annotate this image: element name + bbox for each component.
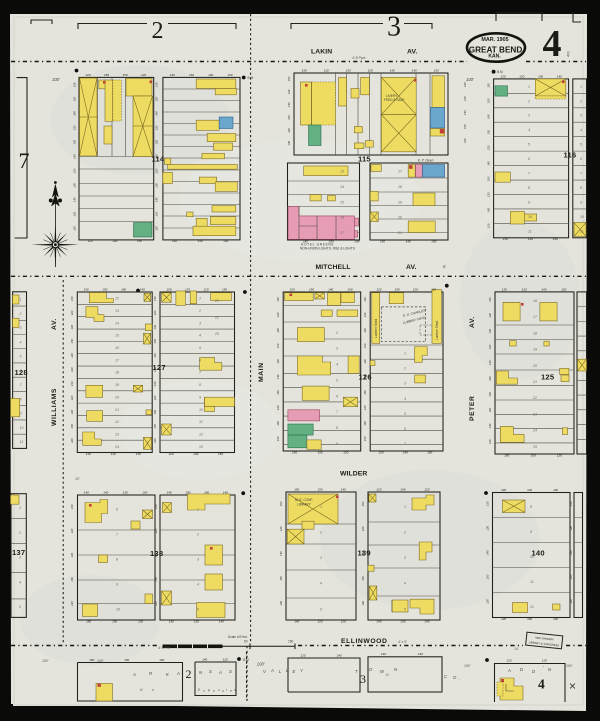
svg-text:2: 2 xyxy=(403,531,406,535)
svg-text:T: T xyxy=(355,669,358,674)
svg-text:8: 8 xyxy=(528,186,530,190)
svg-text:2: 2 xyxy=(196,533,199,537)
svg-text:120: 120 xyxy=(363,359,367,364)
svg-text:2: 2 xyxy=(152,18,164,44)
svg-text:AV.: AV. xyxy=(407,49,418,56)
svg-text:120: 120 xyxy=(153,310,157,315)
svg-text:S: S xyxy=(229,669,232,674)
svg-text:140: 140 xyxy=(193,452,198,456)
svg-text:Scale of Feet.: Scale of Feet. xyxy=(228,635,248,639)
svg-text:150: 150 xyxy=(124,658,129,662)
svg-text:150: 150 xyxy=(463,82,467,87)
svg-text:120: 120 xyxy=(487,145,491,150)
svg-text:140: 140 xyxy=(219,620,224,624)
svg-text:120: 120 xyxy=(569,599,573,604)
svg-text:150: 150 xyxy=(155,168,159,173)
svg-text:x: x xyxy=(202,689,205,693)
svg-text:3: 3 xyxy=(528,114,530,118)
svg-text:6: 6 xyxy=(528,157,530,161)
svg-text:22: 22 xyxy=(114,420,119,424)
svg-text:120: 120 xyxy=(486,599,490,604)
svg-text:140: 140 xyxy=(381,652,386,656)
svg-text:120: 120 xyxy=(488,360,492,365)
svg-text:11: 11 xyxy=(199,420,203,424)
svg-text:150: 150 xyxy=(487,83,491,88)
svg-text:150: 150 xyxy=(123,491,128,495)
svg-text:120: 120 xyxy=(341,620,346,624)
svg-text:120: 120 xyxy=(287,128,291,133)
svg-text:150: 150 xyxy=(102,288,107,292)
svg-text:100′: 100′ xyxy=(566,664,573,668)
svg-text:u: u xyxy=(222,689,224,693)
svg-text:140: 140 xyxy=(287,102,291,107)
svg-text:150: 150 xyxy=(70,338,74,343)
svg-text:2: 2 xyxy=(403,367,406,371)
svg-text:120: 120 xyxy=(155,96,159,101)
svg-text:ELLINWOOD: ELLINWOOD xyxy=(341,638,387,645)
svg-text:120: 120 xyxy=(431,288,436,292)
svg-text:120: 120 xyxy=(542,659,547,663)
svg-text:10: 10 xyxy=(580,215,584,219)
svg-text:10: 10 xyxy=(528,215,532,219)
svg-text:140: 140 xyxy=(488,423,492,428)
svg-text:140: 140 xyxy=(155,154,159,159)
svg-text:KAN.: KAN. xyxy=(488,54,501,60)
svg-text:150: 150 xyxy=(73,125,77,130)
svg-text:20: 20 xyxy=(532,364,537,368)
svg-text:13: 13 xyxy=(340,170,344,174)
svg-text:150: 150 xyxy=(279,501,283,506)
svg-text:B.M: B.M xyxy=(497,70,503,74)
svg-text:3: 3 xyxy=(387,12,401,43)
svg-text:150: 150 xyxy=(276,343,280,348)
svg-text:140: 140 xyxy=(202,658,207,662)
svg-text:1: 1 xyxy=(580,85,582,89)
svg-text:4: 4 xyxy=(19,580,21,584)
svg-text:150: 150 xyxy=(70,424,74,429)
svg-text:140: 140 xyxy=(140,288,145,292)
svg-text:6: 6 xyxy=(20,369,22,373)
svg-text:5: 5 xyxy=(20,355,22,359)
svg-text:140: 140 xyxy=(153,367,157,372)
svg-text:150: 150 xyxy=(218,452,223,456)
svg-text:150: 150 xyxy=(154,577,158,582)
svg-text:140: 140 xyxy=(167,491,172,495)
svg-text:K: K xyxy=(166,672,169,677)
svg-text:150: 150 xyxy=(153,296,157,301)
svg-text:120: 120 xyxy=(501,617,506,621)
svg-text:Lumber Shed: Lumber Shed xyxy=(374,319,378,338)
svg-text:140: 140 xyxy=(287,140,291,145)
svg-text:150: 150 xyxy=(112,620,117,624)
svg-text:120: 120 xyxy=(363,312,367,317)
svg-text:120: 120 xyxy=(138,620,143,624)
svg-text:140: 140 xyxy=(112,239,117,243)
svg-text:120: 120 xyxy=(169,452,174,456)
svg-text:120: 120 xyxy=(73,226,77,231)
svg-text:150: 150 xyxy=(84,288,89,292)
svg-text:1: 1 xyxy=(404,505,406,509)
svg-text:D: D xyxy=(520,667,523,672)
svg-text:150: 150 xyxy=(329,240,334,244)
svg-text:1: 1 xyxy=(199,297,201,301)
svg-text:120: 120 xyxy=(287,89,291,94)
svg-text:120: 120 xyxy=(324,69,329,73)
svg-text:150: 150 xyxy=(287,115,291,120)
svg-text:120: 120 xyxy=(70,310,74,315)
svg-text:120: 120 xyxy=(527,488,532,492)
svg-text:9: 9 xyxy=(20,412,22,416)
svg-text:20: 20 xyxy=(397,216,402,220)
svg-text:4: 4 xyxy=(404,582,406,586)
svg-text:120: 120 xyxy=(486,525,490,530)
svg-text:140: 140 xyxy=(363,374,367,379)
svg-text:150: 150 xyxy=(395,288,400,292)
svg-text:10: 10 xyxy=(116,608,120,612)
svg-text:150: 150 xyxy=(153,338,157,343)
svg-text:150: 150 xyxy=(194,620,199,624)
svg-text:140: 140 xyxy=(276,374,280,379)
svg-text:150: 150 xyxy=(70,296,74,301)
svg-text:140: 140 xyxy=(363,328,367,333)
svg-text:.: . xyxy=(459,676,460,681)
svg-text:150: 150 xyxy=(287,76,291,81)
svg-text:4: 4 xyxy=(197,583,199,587)
svg-text:125: 125 xyxy=(541,373,555,382)
svg-text:150: 150 xyxy=(502,288,507,292)
svg-text:100′: 100′ xyxy=(52,77,60,82)
svg-text:150: 150 xyxy=(294,488,299,492)
svg-text:120: 120 xyxy=(70,438,74,443)
svg-text:AV.: AV. xyxy=(469,316,476,328)
svg-text:A: A xyxy=(218,670,222,675)
svg-text:4: 4 xyxy=(20,340,22,344)
svg-text:3: 3 xyxy=(19,556,21,560)
svg-text:120: 120 xyxy=(569,525,573,530)
svg-text:140: 140 xyxy=(412,69,417,73)
svg-text:150: 150 xyxy=(136,452,141,456)
svg-text:150: 150 xyxy=(363,390,367,395)
svg-text:1: 1 xyxy=(528,85,530,89)
svg-text:A: A xyxy=(270,668,274,673)
svg-text:M. E. CONF.: M. E. CONF. xyxy=(295,498,313,502)
svg-text:140: 140 xyxy=(488,328,492,333)
svg-text:24: 24 xyxy=(114,445,119,449)
svg-text:K. P. Owen: K. P. Owen xyxy=(418,159,434,163)
svg-text:120: 120 xyxy=(557,454,562,458)
svg-text:Lumber Shed: Lumber Shed xyxy=(435,321,439,340)
svg-text:120: 120 xyxy=(318,620,323,624)
svg-text:150: 150 xyxy=(348,288,353,292)
svg-text:120: 120 xyxy=(276,405,280,410)
svg-text:150: 150 xyxy=(70,504,74,509)
svg-text:15: 15 xyxy=(340,200,344,204)
svg-text:150: 150 xyxy=(486,574,490,579)
svg-text:150: 150 xyxy=(276,297,280,302)
svg-text:120: 120 xyxy=(301,654,306,658)
svg-text:22: 22 xyxy=(214,316,219,320)
svg-text:120: 120 xyxy=(506,659,511,663)
svg-text:1: 1 xyxy=(19,506,21,510)
svg-text:120: 120 xyxy=(73,139,77,144)
svg-text:140: 140 xyxy=(403,451,408,455)
svg-text:140: 140 xyxy=(303,240,308,244)
svg-text:o: o xyxy=(213,689,215,693)
svg-text:140: 140 xyxy=(73,197,77,202)
svg-text:4: 4 xyxy=(580,128,582,132)
svg-text:140: 140 xyxy=(328,288,333,292)
svg-text:8: 8 xyxy=(199,383,201,387)
svg-text:3: 3 xyxy=(197,558,199,562)
svg-text:LAKIN: LAKIN xyxy=(311,49,332,56)
svg-text:18: 18 xyxy=(115,371,119,375)
svg-text:3: 3 xyxy=(404,556,406,560)
svg-text:6: 6 xyxy=(199,358,201,362)
svg-text:150: 150 xyxy=(309,288,314,292)
svg-text:120: 120 xyxy=(155,226,159,231)
svg-text:140: 140 xyxy=(70,324,74,329)
svg-text:120: 120 xyxy=(519,75,524,79)
svg-text:100′: 100′ xyxy=(97,659,104,663)
svg-text:2: 2 xyxy=(319,531,322,535)
svg-text:5: 5 xyxy=(528,143,530,147)
svg-text:MAR. 1905: MAR. 1905 xyxy=(481,37,508,43)
svg-text:9: 9 xyxy=(580,200,582,204)
svg-text:150: 150 xyxy=(363,343,367,348)
svg-text:140: 140 xyxy=(223,491,228,495)
svg-text:150: 150 xyxy=(363,297,367,302)
svg-text:120: 120 xyxy=(488,313,492,318)
svg-text:8: 8 xyxy=(336,426,338,430)
svg-text:120: 120 xyxy=(141,73,146,77)
svg-text:13: 13 xyxy=(115,309,119,313)
svg-text:4′ x 5′: 4′ x 5′ xyxy=(398,640,407,644)
svg-text:400: 400 xyxy=(567,51,571,57)
svg-text:AV.: AV. xyxy=(406,264,417,271)
svg-text:140: 140 xyxy=(70,367,74,372)
svg-text:11: 11 xyxy=(20,440,24,444)
svg-text:140: 140 xyxy=(569,550,573,555)
svg-text:120: 120 xyxy=(185,288,190,292)
svg-text:140: 140 xyxy=(557,75,562,79)
svg-text:140: 140 xyxy=(528,237,533,241)
svg-text:150: 150 xyxy=(73,168,77,173)
svg-text:150: 150 xyxy=(70,381,74,386)
svg-text:3: 3 xyxy=(336,347,338,351)
svg-text:120: 120 xyxy=(488,407,492,412)
svg-text:140: 140 xyxy=(390,69,395,73)
svg-text:p: p xyxy=(207,688,210,692)
svg-text:2: 2 xyxy=(579,99,582,103)
svg-text:FEED & SALE: FEED & SALE xyxy=(384,98,405,102)
svg-text:22: 22 xyxy=(532,396,537,400)
svg-text:120: 120 xyxy=(86,73,91,77)
svg-text:A: A xyxy=(507,668,511,673)
svg-text:140: 140 xyxy=(418,652,423,656)
svg-text:3: 3 xyxy=(20,326,22,330)
svg-text:150: 150 xyxy=(142,491,147,495)
svg-text:150: 150 xyxy=(288,640,294,644)
svg-text:8: 8 xyxy=(530,505,532,509)
svg-text:150: 150 xyxy=(153,424,157,429)
svg-text:150: 150 xyxy=(361,501,365,506)
svg-text:150: 150 xyxy=(488,297,492,302)
svg-text:150: 150 xyxy=(185,491,190,495)
svg-text:140: 140 xyxy=(121,288,126,292)
svg-text:150: 150 xyxy=(569,501,573,506)
svg-text:100′: 100′ xyxy=(257,662,265,667)
svg-text:2: 2 xyxy=(186,667,192,681)
svg-text:120: 120 xyxy=(153,438,157,443)
svg-text:150: 150 xyxy=(137,239,142,243)
svg-text:150: 150 xyxy=(431,240,436,244)
svg-text:150: 150 xyxy=(318,451,323,455)
svg-text:10: 10 xyxy=(530,555,534,559)
svg-text:4: 4 xyxy=(538,676,545,691)
svg-text:5: 5 xyxy=(336,379,338,383)
svg-text:140: 140 xyxy=(354,240,359,244)
svg-text:2: 2 xyxy=(335,331,338,335)
svg-text:2: 2 xyxy=(198,309,201,313)
svg-text:150: 150 xyxy=(276,390,280,395)
svg-text:150: 150 xyxy=(487,223,491,228)
svg-text:120: 120 xyxy=(86,452,91,456)
svg-text:140: 140 xyxy=(155,111,159,116)
svg-text:120: 120 xyxy=(290,288,295,292)
svg-text:1: 1 xyxy=(20,298,22,302)
svg-text:6: 6 xyxy=(580,157,582,161)
svg-text:MAIN: MAIN xyxy=(258,362,265,382)
svg-text:23: 23 xyxy=(532,412,537,416)
svg-text:115: 115 xyxy=(358,155,371,164)
svg-text:120: 120 xyxy=(487,98,491,103)
svg-text:4: 4 xyxy=(336,363,338,367)
svg-text:14: 14 xyxy=(340,185,344,189)
svg-text:LIBRARY: LIBRARY xyxy=(297,503,311,507)
svg-text:120: 120 xyxy=(70,601,74,606)
svg-text:23: 23 xyxy=(214,332,219,336)
svg-text:16: 16 xyxy=(115,346,119,350)
svg-text:140: 140 xyxy=(70,552,74,557)
svg-text:3: 3 xyxy=(360,672,366,686)
svg-text:120: 120 xyxy=(154,528,158,533)
svg-text:150: 150 xyxy=(553,237,558,241)
svg-text:120: 120 xyxy=(361,600,365,605)
svg-text:120: 120 xyxy=(363,405,367,410)
svg-text:150: 150 xyxy=(504,454,509,458)
svg-text:120: 120 xyxy=(154,601,158,606)
svg-text:5: 5 xyxy=(320,607,322,611)
svg-text:140: 140 xyxy=(553,488,558,492)
svg-text:16: 16 xyxy=(533,299,537,303)
svg-text:WILLIAMS: WILLIAMS xyxy=(51,388,58,426)
svg-text:150: 150 xyxy=(73,82,77,87)
svg-text:150: 150 xyxy=(487,176,491,181)
svg-text:140: 140 xyxy=(487,114,491,119)
svg-text:21: 21 xyxy=(532,380,537,384)
svg-text:12: 12 xyxy=(530,605,534,609)
svg-text:6: 6 xyxy=(116,508,118,512)
svg-text:140: 140 xyxy=(279,551,283,556)
svg-text:12: 12 xyxy=(199,433,203,437)
svg-text:E: E xyxy=(293,669,296,674)
svg-text:140: 140 xyxy=(424,620,429,624)
svg-text:3: 3 xyxy=(404,382,406,386)
svg-text:120: 120 xyxy=(70,353,74,358)
svg-text:16: 16 xyxy=(340,216,344,220)
svg-text:19: 19 xyxy=(398,200,402,204)
svg-text:8: 8 xyxy=(580,186,582,190)
svg-text:140: 140 xyxy=(153,409,157,414)
svg-text:S: S xyxy=(209,669,212,674)
svg-text:4: 4 xyxy=(404,397,406,401)
svg-text:5: 5 xyxy=(404,607,406,611)
svg-text:150: 150 xyxy=(153,381,157,386)
svg-text:s: s xyxy=(218,688,220,692)
svg-text:D: D xyxy=(532,669,535,674)
svg-text:150: 150 xyxy=(486,501,490,506)
svg-text:150: 150 xyxy=(189,73,194,77)
svg-text:120: 120 xyxy=(343,451,348,455)
svg-text:120: 120 xyxy=(413,288,418,292)
svg-text:150: 150 xyxy=(228,73,233,77)
svg-text:11: 11 xyxy=(530,580,534,584)
svg-text:140: 140 xyxy=(463,110,467,115)
svg-text:140: 140 xyxy=(208,73,213,77)
svg-text:18: 18 xyxy=(398,185,402,189)
svg-text:4: 4 xyxy=(199,334,201,338)
svg-text:4′ x P′re: 4′ x P′re xyxy=(158,646,170,650)
svg-text:3: 3 xyxy=(320,556,322,560)
svg-text:120: 120 xyxy=(70,528,74,533)
svg-text:4: 4 xyxy=(320,582,322,586)
svg-text:150: 150 xyxy=(379,451,384,455)
svg-text:140: 140 xyxy=(341,488,346,492)
svg-text:4′ B Pipe: 4′ B Pipe xyxy=(352,56,366,60)
svg-text:NON-UNION LIGHTS. RGE & LIGHTS: NON-UNION LIGHTS. RGE & LIGHTS xyxy=(300,247,355,251)
svg-text:21: 21 xyxy=(397,231,402,235)
svg-text:140: 140 xyxy=(154,552,158,557)
svg-text:120: 120 xyxy=(361,526,365,531)
svg-text:140: 140 xyxy=(111,452,116,456)
svg-text:140: 140 xyxy=(363,421,367,426)
svg-text:120: 120 xyxy=(501,488,506,492)
svg-text:140: 140 xyxy=(527,617,532,621)
svg-text:e: e xyxy=(230,689,232,693)
svg-text:120: 120 xyxy=(463,96,467,101)
svg-text:3: 3 xyxy=(199,321,201,325)
svg-text:120: 120 xyxy=(376,488,381,492)
svg-text:150: 150 xyxy=(73,211,77,216)
svg-text:WILDER: WILDER xyxy=(340,471,367,478)
svg-text:140: 140 xyxy=(70,409,74,414)
svg-text:150: 150 xyxy=(380,240,385,244)
svg-text:10: 10 xyxy=(20,426,24,430)
svg-text:11: 11 xyxy=(528,229,532,233)
svg-text:120: 120 xyxy=(376,288,381,292)
svg-text:1: 1 xyxy=(320,505,322,509)
svg-text:140: 140 xyxy=(172,239,177,243)
svg-text:140: 140 xyxy=(337,654,342,658)
svg-text:5: 5 xyxy=(197,608,199,612)
svg-text:120: 120 xyxy=(73,96,77,101)
svg-text:140: 140 xyxy=(400,488,405,492)
svg-text:4: 4 xyxy=(543,23,562,65)
svg-text:7: 7 xyxy=(19,148,30,173)
svg-text:9: 9 xyxy=(116,583,118,587)
svg-text:A: A xyxy=(176,671,180,676)
svg-text:MITCHELL: MITCHELL xyxy=(316,264,351,271)
